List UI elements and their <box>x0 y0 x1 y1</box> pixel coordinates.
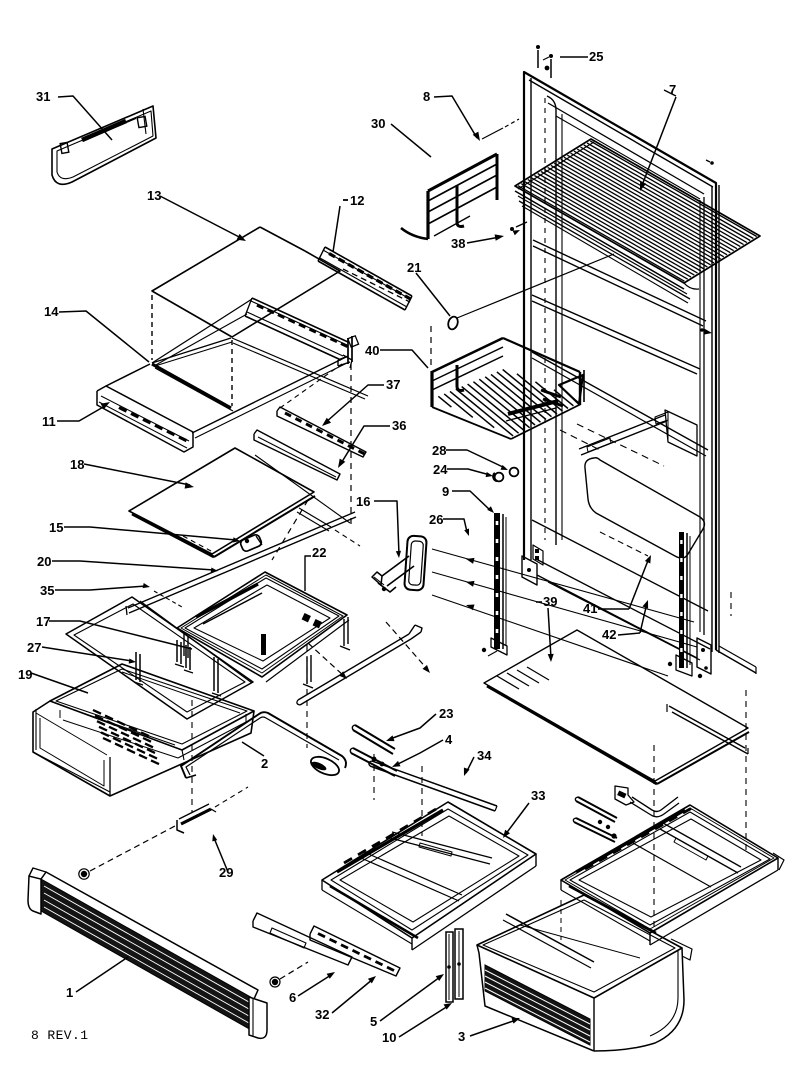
svg-text:32: 32 <box>315 1007 329 1022</box>
svg-text:19: 19 <box>18 667 32 682</box>
svg-text:36: 36 <box>392 418 406 433</box>
svg-text:16: 16 <box>356 494 370 509</box>
svg-text:31: 31 <box>36 89 50 104</box>
svg-text:11: 11 <box>42 414 56 429</box>
svg-text:26: 26 <box>429 512 443 527</box>
svg-text:39: 39 <box>543 594 557 609</box>
svg-text:34: 34 <box>477 748 492 763</box>
svg-text:2: 2 <box>261 756 268 771</box>
svg-text:4: 4 <box>445 732 453 747</box>
svg-text:8: 8 <box>423 89 430 104</box>
svg-text:22: 22 <box>312 545 326 560</box>
svg-text:25: 25 <box>589 49 603 64</box>
svg-text:40: 40 <box>365 343 379 358</box>
svg-text:23: 23 <box>439 706 453 721</box>
svg-text:8 REV.1: 8 REV.1 <box>31 1028 88 1043</box>
svg-text:41: 41 <box>583 601 597 616</box>
svg-text:1: 1 <box>66 985 73 1000</box>
svg-text:30: 30 <box>371 116 385 131</box>
svg-text:15: 15 <box>49 520 63 535</box>
svg-text:5: 5 <box>370 1014 377 1029</box>
svg-text:6: 6 <box>289 990 296 1005</box>
svg-text:17: 17 <box>36 614 50 629</box>
svg-text:35: 35 <box>40 583 54 598</box>
svg-text:9: 9 <box>442 484 449 499</box>
svg-text:12: 12 <box>350 193 364 208</box>
svg-text:20: 20 <box>37 554 51 569</box>
svg-text:28: 28 <box>432 443 446 458</box>
svg-text:27: 27 <box>27 640 41 655</box>
svg-text:14: 14 <box>44 304 59 319</box>
svg-text:18: 18 <box>70 457 84 472</box>
svg-text:42: 42 <box>602 627 616 642</box>
svg-text:38: 38 <box>451 236 465 251</box>
svg-text:10: 10 <box>382 1030 396 1045</box>
svg-text:33: 33 <box>531 788 545 803</box>
svg-text:24: 24 <box>433 462 448 477</box>
svg-text:3: 3 <box>458 1029 465 1044</box>
svg-text:13: 13 <box>147 188 161 203</box>
svg-text:21: 21 <box>407 260 421 275</box>
svg-text:37: 37 <box>386 377 400 392</box>
